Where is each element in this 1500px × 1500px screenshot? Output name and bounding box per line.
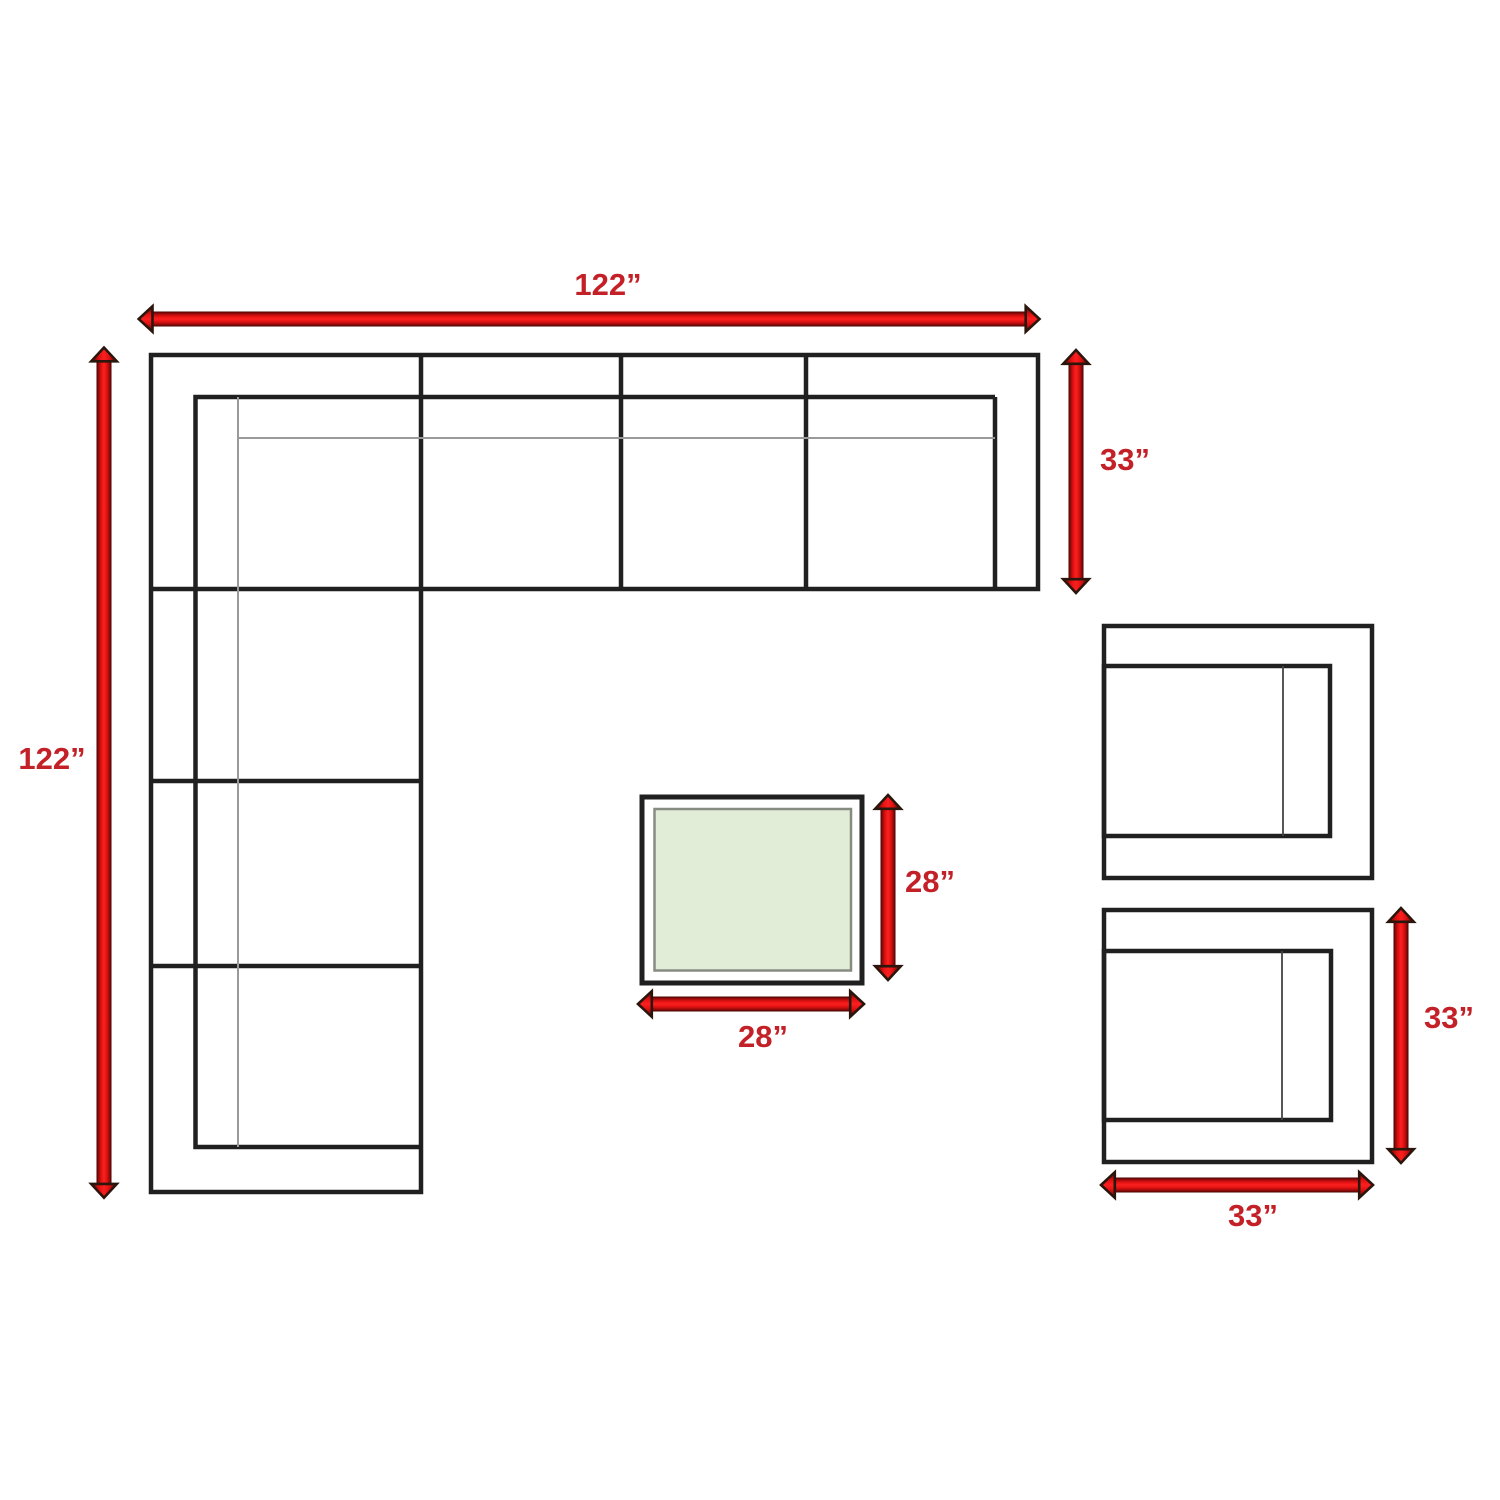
svg-text:122”: 122”	[18, 741, 85, 776]
svg-text:28”: 28”	[738, 1019, 788, 1054]
svg-text:33”: 33”	[1100, 442, 1150, 477]
svg-text:28”: 28”	[905, 864, 955, 899]
svg-text:33”: 33”	[1228, 1198, 1278, 1233]
svg-text:122”: 122”	[574, 267, 641, 302]
svg-text:33”: 33”	[1424, 1000, 1474, 1035]
